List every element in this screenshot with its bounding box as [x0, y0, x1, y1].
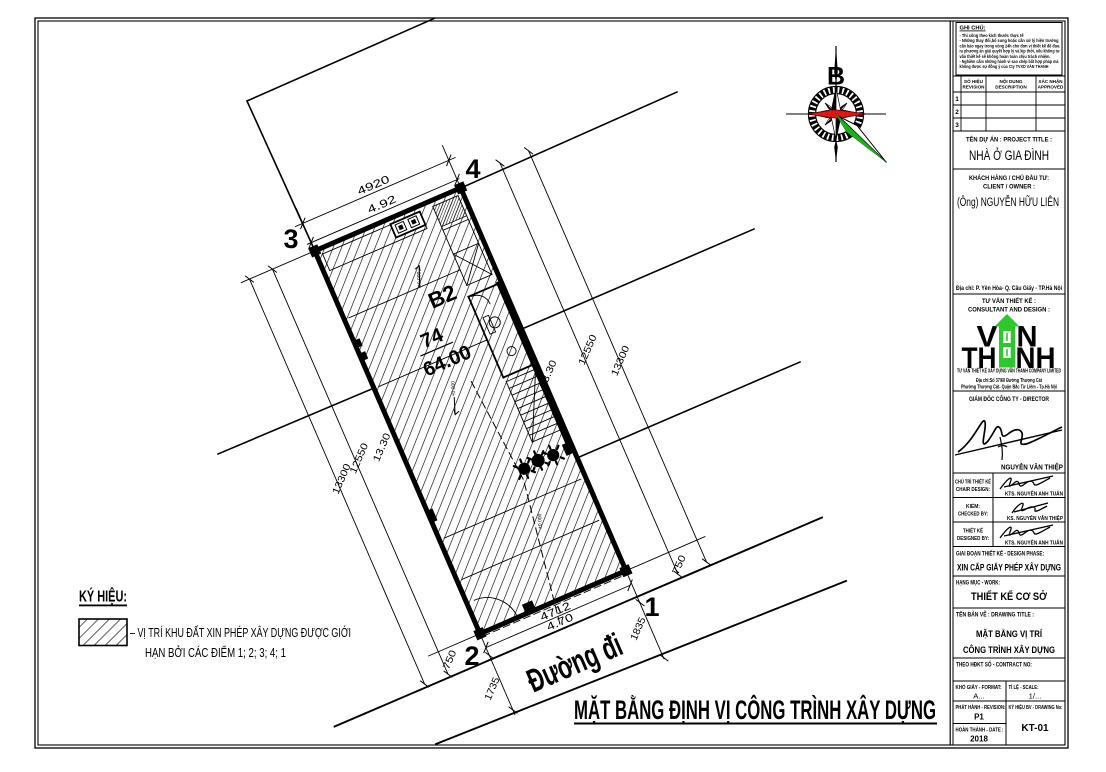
svg-text:Phường Thượng Cát- Quận Bắc Từ: Phường Thượng Cát- Quận Bắc Từ Liêm - Tp… — [961, 384, 1057, 391]
svg-text:B: B — [827, 63, 845, 91]
svg-text:cần báo ngay trong vòng 24h ch: cần báo ngay trong vòng 24h cho đơn vị t… — [960, 42, 1060, 48]
svg-text:REVISION: REVISION — [963, 85, 986, 90]
svg-text:NHÀ Ở GIA ĐÌNH: NHÀ Ở GIA ĐÌNH — [969, 148, 1049, 163]
svg-text:- Nghiêm cấm những hành vi sao: - Nghiêm cấm những hành vi sao chép bất … — [960, 58, 1059, 64]
svg-text:NGUYỄN VĂN THIỆP: NGUYỄN VĂN THIỆP — [1001, 463, 1063, 472]
svg-text:+0.000: +0.000 — [451, 381, 457, 397]
svg-text:KTS. NGUYỄN ANH TUẤN: KTS. NGUYỄN ANH TUẤN — [1005, 491, 1063, 498]
svg-text:GHI CHÚ:: GHI CHÚ: — [960, 25, 986, 32]
svg-text:XÁC NHẬN: XÁC NHẬN — [1038, 78, 1063, 84]
svg-text:CLIENT / OWNER :: CLIENT / OWNER : — [983, 184, 1035, 191]
svg-text:THEO HĐKT SỐ - CONTRACT NO:: THEO HĐKT SỐ - CONTRACT NO: — [956, 662, 1032, 669]
svg-text:NỘI DUNG: NỘI DUNG — [1000, 77, 1023, 84]
svg-text:1/...: 1/... — [1029, 692, 1042, 701]
svg-text:- Những thay đổi,bổ sung hoặc: - Những thay đổi,bổ sung hoặc cần xử lý … — [960, 37, 1059, 43]
svg-text:TƯ VẤN THIẾT KẾ XÂY DỰNG VĂN T: TƯ VẤN THIẾT KẾ XÂY DỰNG VĂN THANH COMPA… — [957, 368, 1061, 375]
svg-text:TÊN DỰ ÁN : PROJECT TITLE :: TÊN DỰ ÁN : PROJECT TITLE : — [966, 135, 1052, 144]
svg-text:1: 1 — [644, 592, 659, 622]
svg-text:XIN CẤP GIẤY PHÉP XÂY DỰNG: XIN CẤP GIẤY PHÉP XÂY DỰNG — [957, 562, 1061, 574]
svg-text:CHỦ TRÌ THIẾT KẾ: CHỦ TRÌ THIẾT KẾ — [955, 478, 991, 486]
svg-text:KT-01: KT-01 — [1021, 723, 1049, 734]
svg-text:1: 1 — [955, 96, 959, 103]
svg-text:THIẾT KẾ: THIẾT KẾ — [963, 528, 983, 535]
svg-text:KTS. NGUYỄN ANH TUẤN: KTS. NGUYỄN ANH TUẤN — [1005, 540, 1063, 547]
svg-text:MẶT BẰNG ĐỊNH VỊ CÔNG TRÌNH XÂ: MẶT BẰNG ĐỊNH VỊ CÔNG TRÌNH XÂY DỰNG — [574, 694, 936, 725]
svg-text:MẶT BẰNG VỊ TRÍ: MẶT BẰNG VỊ TRÍ — [976, 628, 1042, 640]
svg-text:HOÀN THÀNH - DATE :: HOÀN THÀNH - DATE : — [956, 727, 1004, 734]
svg-text:APPROVED: APPROVED — [1038, 85, 1064, 90]
svg-text:3: 3 — [283, 224, 298, 254]
svg-text:GIAI ĐOẠN THIẾT KẾ - DESIGN PH: GIAI ĐOẠN THIẾT KẾ - DESIGN PHASE: — [956, 551, 1044, 558]
svg-text:2: 2 — [464, 641, 479, 671]
svg-text:4: 4 — [465, 154, 480, 184]
svg-text:THIẾT KẾ CƠ SỞ: THIẾT KẾ CƠ SỞ — [971, 590, 1048, 603]
svg-text:HẠNG MỤC - WORK:: HẠNG MỤC - WORK: — [956, 581, 1000, 587]
svg-text:TÊN BẢN VẼ : DRAWING TITLE :: TÊN BẢN VẼ : DRAWING TITLE : — [956, 611, 1034, 619]
svg-text:ra phương án giải quyết hợp lý: ra phương án giải quyết hợp lý và kịp th… — [960, 48, 1060, 54]
svg-text:KÝ HIỆU:: KÝ HIỆU: — [79, 587, 127, 606]
svg-text:PHÁT HÀNH - REVISION:: PHÁT HÀNH - REVISION: — [956, 704, 1006, 711]
svg-text:2018: 2018 — [970, 735, 988, 744]
svg-text:±0.000: ±0.000 — [537, 513, 543, 529]
svg-text:SỐ HIỆU: SỐ HIỆU — [964, 77, 984, 84]
svg-text:HẠN BỞI CÁC ĐIỂM 1; 2; 3; 4; 1: HẠN BỞI CÁC ĐIỂM 1; 2; 3; 4; 1 — [145, 645, 286, 660]
svg-text:(Ông) NGUYỄN HỮU LIÊN: (Ông) NGUYỄN HỮU LIÊN — [957, 194, 1059, 209]
svg-text:Địa chỉ: P. Yên Hòa- Q. Cầu Gi: Địa chỉ: P. Yên Hòa- Q. Cầu Giấy - TP.Hà… — [956, 283, 1062, 292]
svg-text:TỈ LỆ - SCALE:: TỈ LỆ - SCALE: — [1009, 683, 1039, 691]
svg-text:3: 3 — [955, 122, 959, 129]
svg-text:CHECKED BY:: CHECKED BY: — [958, 512, 988, 518]
svg-text:CHAIR DESIGN:: CHAIR DESIGN: — [956, 487, 990, 493]
svg-text:Địa chỉ:Số 37/60 Đường Thượng: Địa chỉ:Số 37/60 Đường Thượng Cát — [976, 377, 1042, 384]
svg-text:P1: P1 — [974, 713, 984, 722]
svg-text:KIỂM:: KIỂM: — [966, 503, 980, 510]
svg-text:A...: A... — [973, 692, 984, 701]
svg-text:- Thi công theo kích thước thự: - Thi công theo kích thước thực tế — [960, 32, 1024, 38]
svg-text:vấn thiết kế sẽ không hoàn toà: vấn thiết kế sẽ không hoàn toàn chịu trá… — [960, 53, 1051, 59]
svg-text:CÔNG TRÌNH XÂY DỰNG: CÔNG TRÌNH XÂY DỰNG — [963, 644, 1055, 656]
svg-text:DESCRIPTION: DESCRIPTION — [995, 85, 1027, 90]
svg-text:KHỔ GIẤY - FORMAT:: KHỔ GIẤY - FORMAT: — [956, 684, 1002, 691]
svg-text:2: 2 — [955, 109, 959, 116]
svg-text:không được sự đồng ý của Cty T: không được sự đồng ý của Cty TVXD VĂN TH… — [960, 63, 1049, 69]
svg-text:KS. NGUYỄN VĂN THIỆP: KS. NGUYỄN VĂN THIỆP — [1007, 514, 1063, 522]
svg-text:CONSULTANT AND DESIGN :: CONSULTANT AND DESIGN : — [968, 307, 1050, 314]
svg-text:– VỊ TRÍ KHU ĐẤT XIN PHÉP XÂY: – VỊ TRÍ KHU ĐẤT XIN PHÉP XÂY DỰNG ĐƯỢC … — [130, 625, 351, 640]
svg-text:KÝ HIỆU BV - DRAWING No:: KÝ HIỆU BV - DRAWING No: — [1009, 703, 1063, 711]
svg-text:DESIGNED BY:: DESIGNED BY: — [957, 536, 989, 542]
